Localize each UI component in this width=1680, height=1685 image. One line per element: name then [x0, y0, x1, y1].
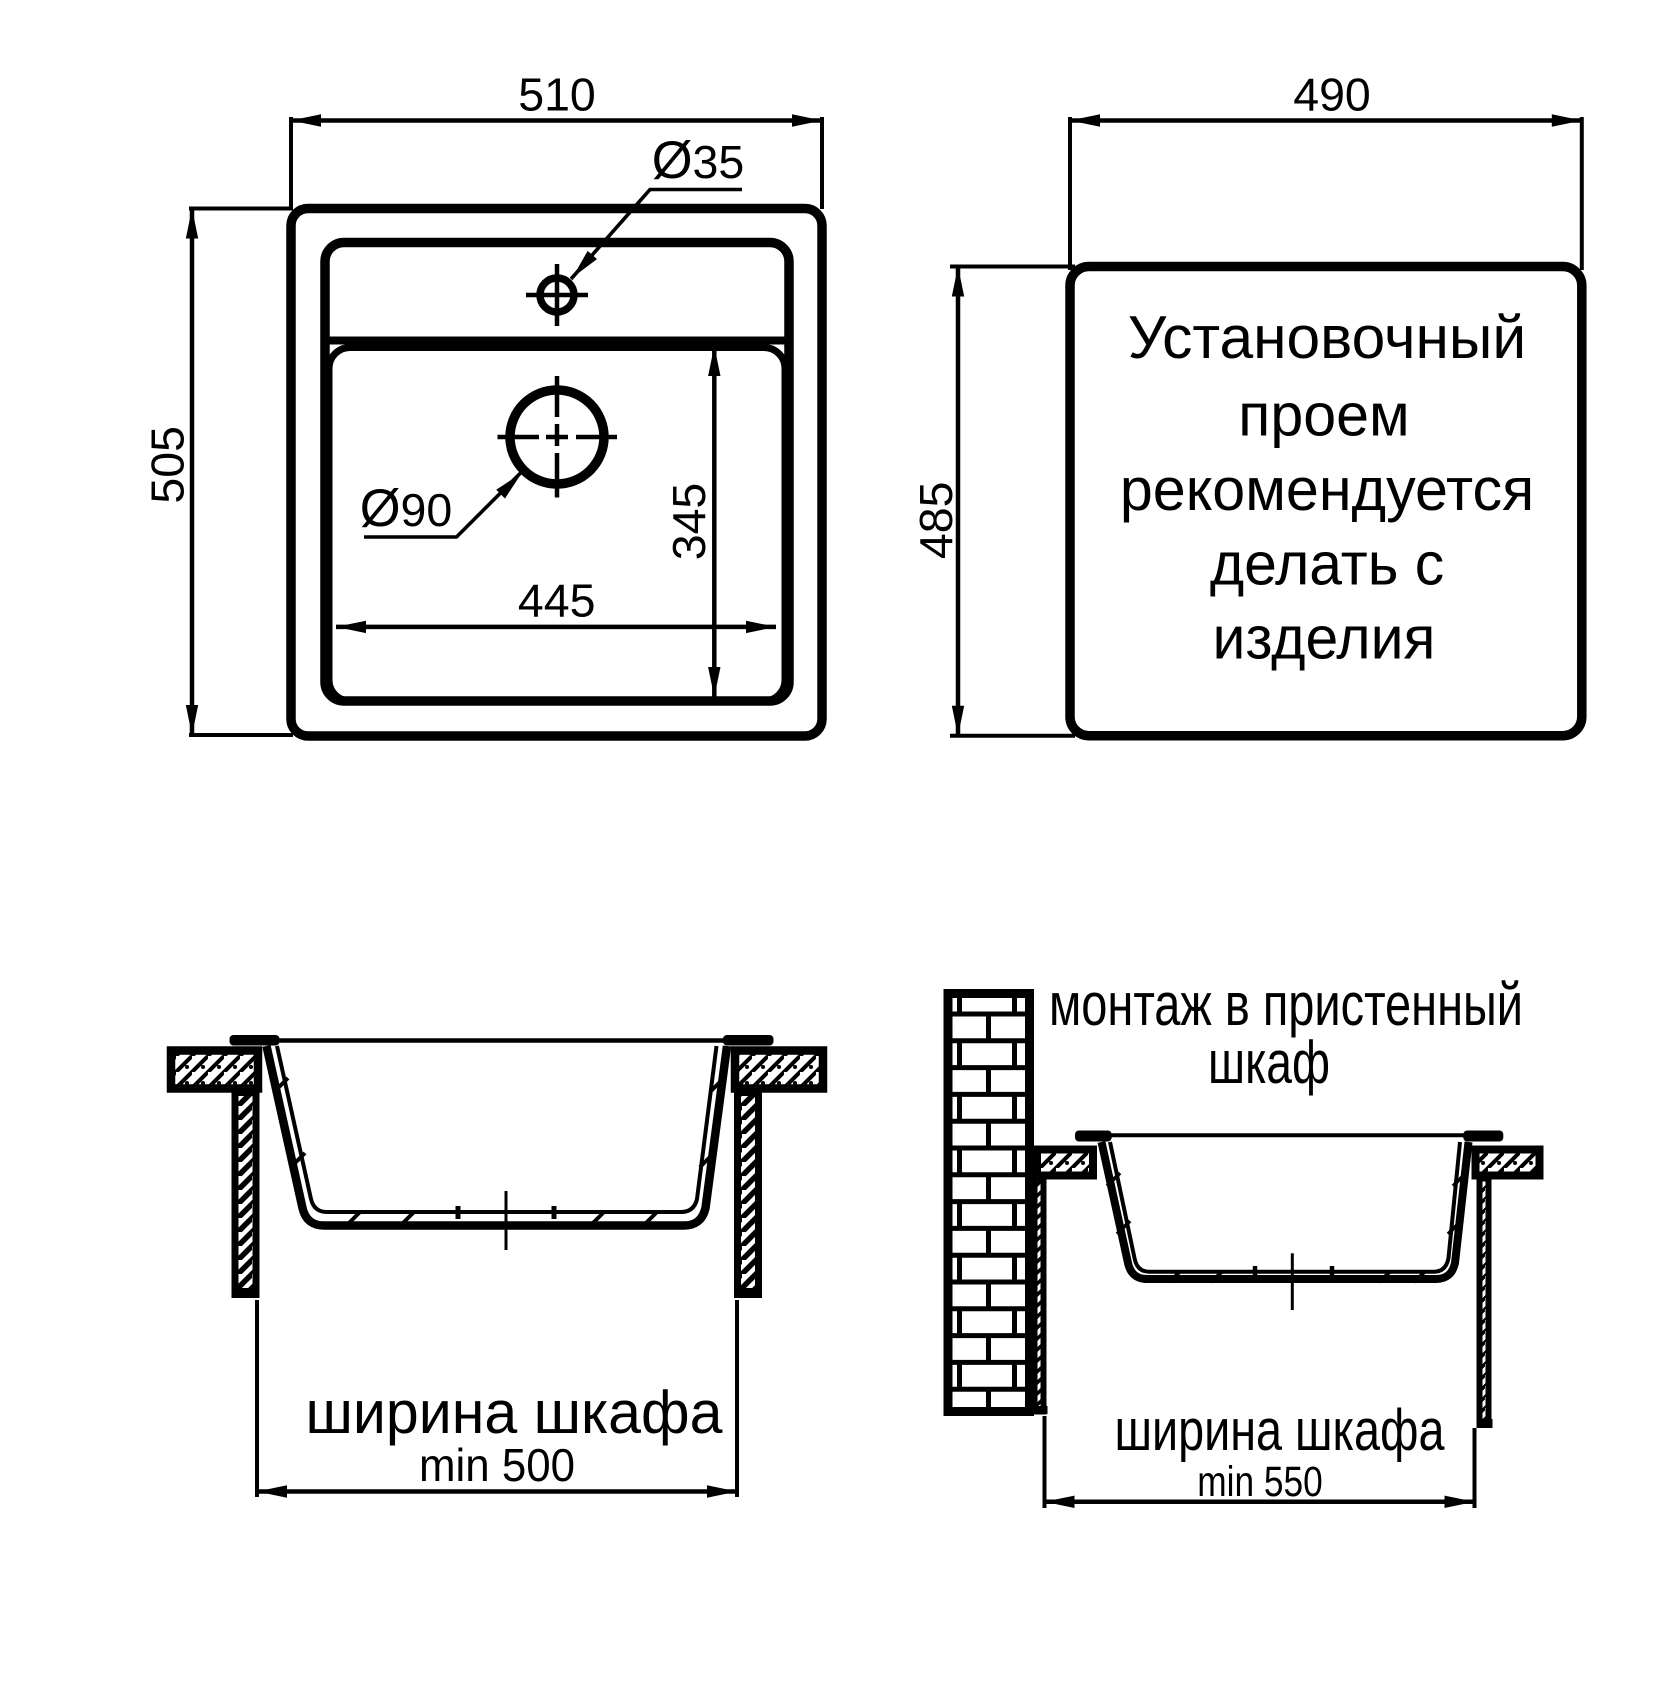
svg-text:505: 505 — [142, 426, 194, 504]
svg-text:445: 445 — [518, 575, 596, 627]
svg-text:Ø35: Ø35 — [652, 131, 745, 190]
svg-text:делать с: делать с — [1210, 529, 1444, 597]
svg-text:проем: проем — [1238, 381, 1409, 449]
svg-text:510: 510 — [518, 69, 596, 121]
svg-text:монтаж в пристенный: монтаж в пристенный — [1049, 971, 1523, 1038]
svg-text:шкаф: шкаф — [1208, 1029, 1330, 1096]
svg-text:min 500: min 500 — [419, 1439, 575, 1491]
svg-text:485: 485 — [910, 482, 962, 560]
svg-text:Установочный: Установочный — [1128, 303, 1527, 371]
svg-text:ширина шкафа: ширина шкафа — [1115, 1398, 1446, 1463]
svg-text:Ø90: Ø90 — [360, 479, 453, 538]
svg-text:490: 490 — [1293, 69, 1371, 121]
svg-text:ширина шкафа: ширина шкафа — [306, 1379, 724, 1446]
svg-text:рекомендуется: рекомендуется — [1120, 455, 1534, 523]
svg-text:изделия: изделия — [1213, 604, 1436, 672]
svg-text:345: 345 — [663, 483, 715, 561]
svg-text:min 550: min 550 — [1197, 1458, 1323, 1506]
